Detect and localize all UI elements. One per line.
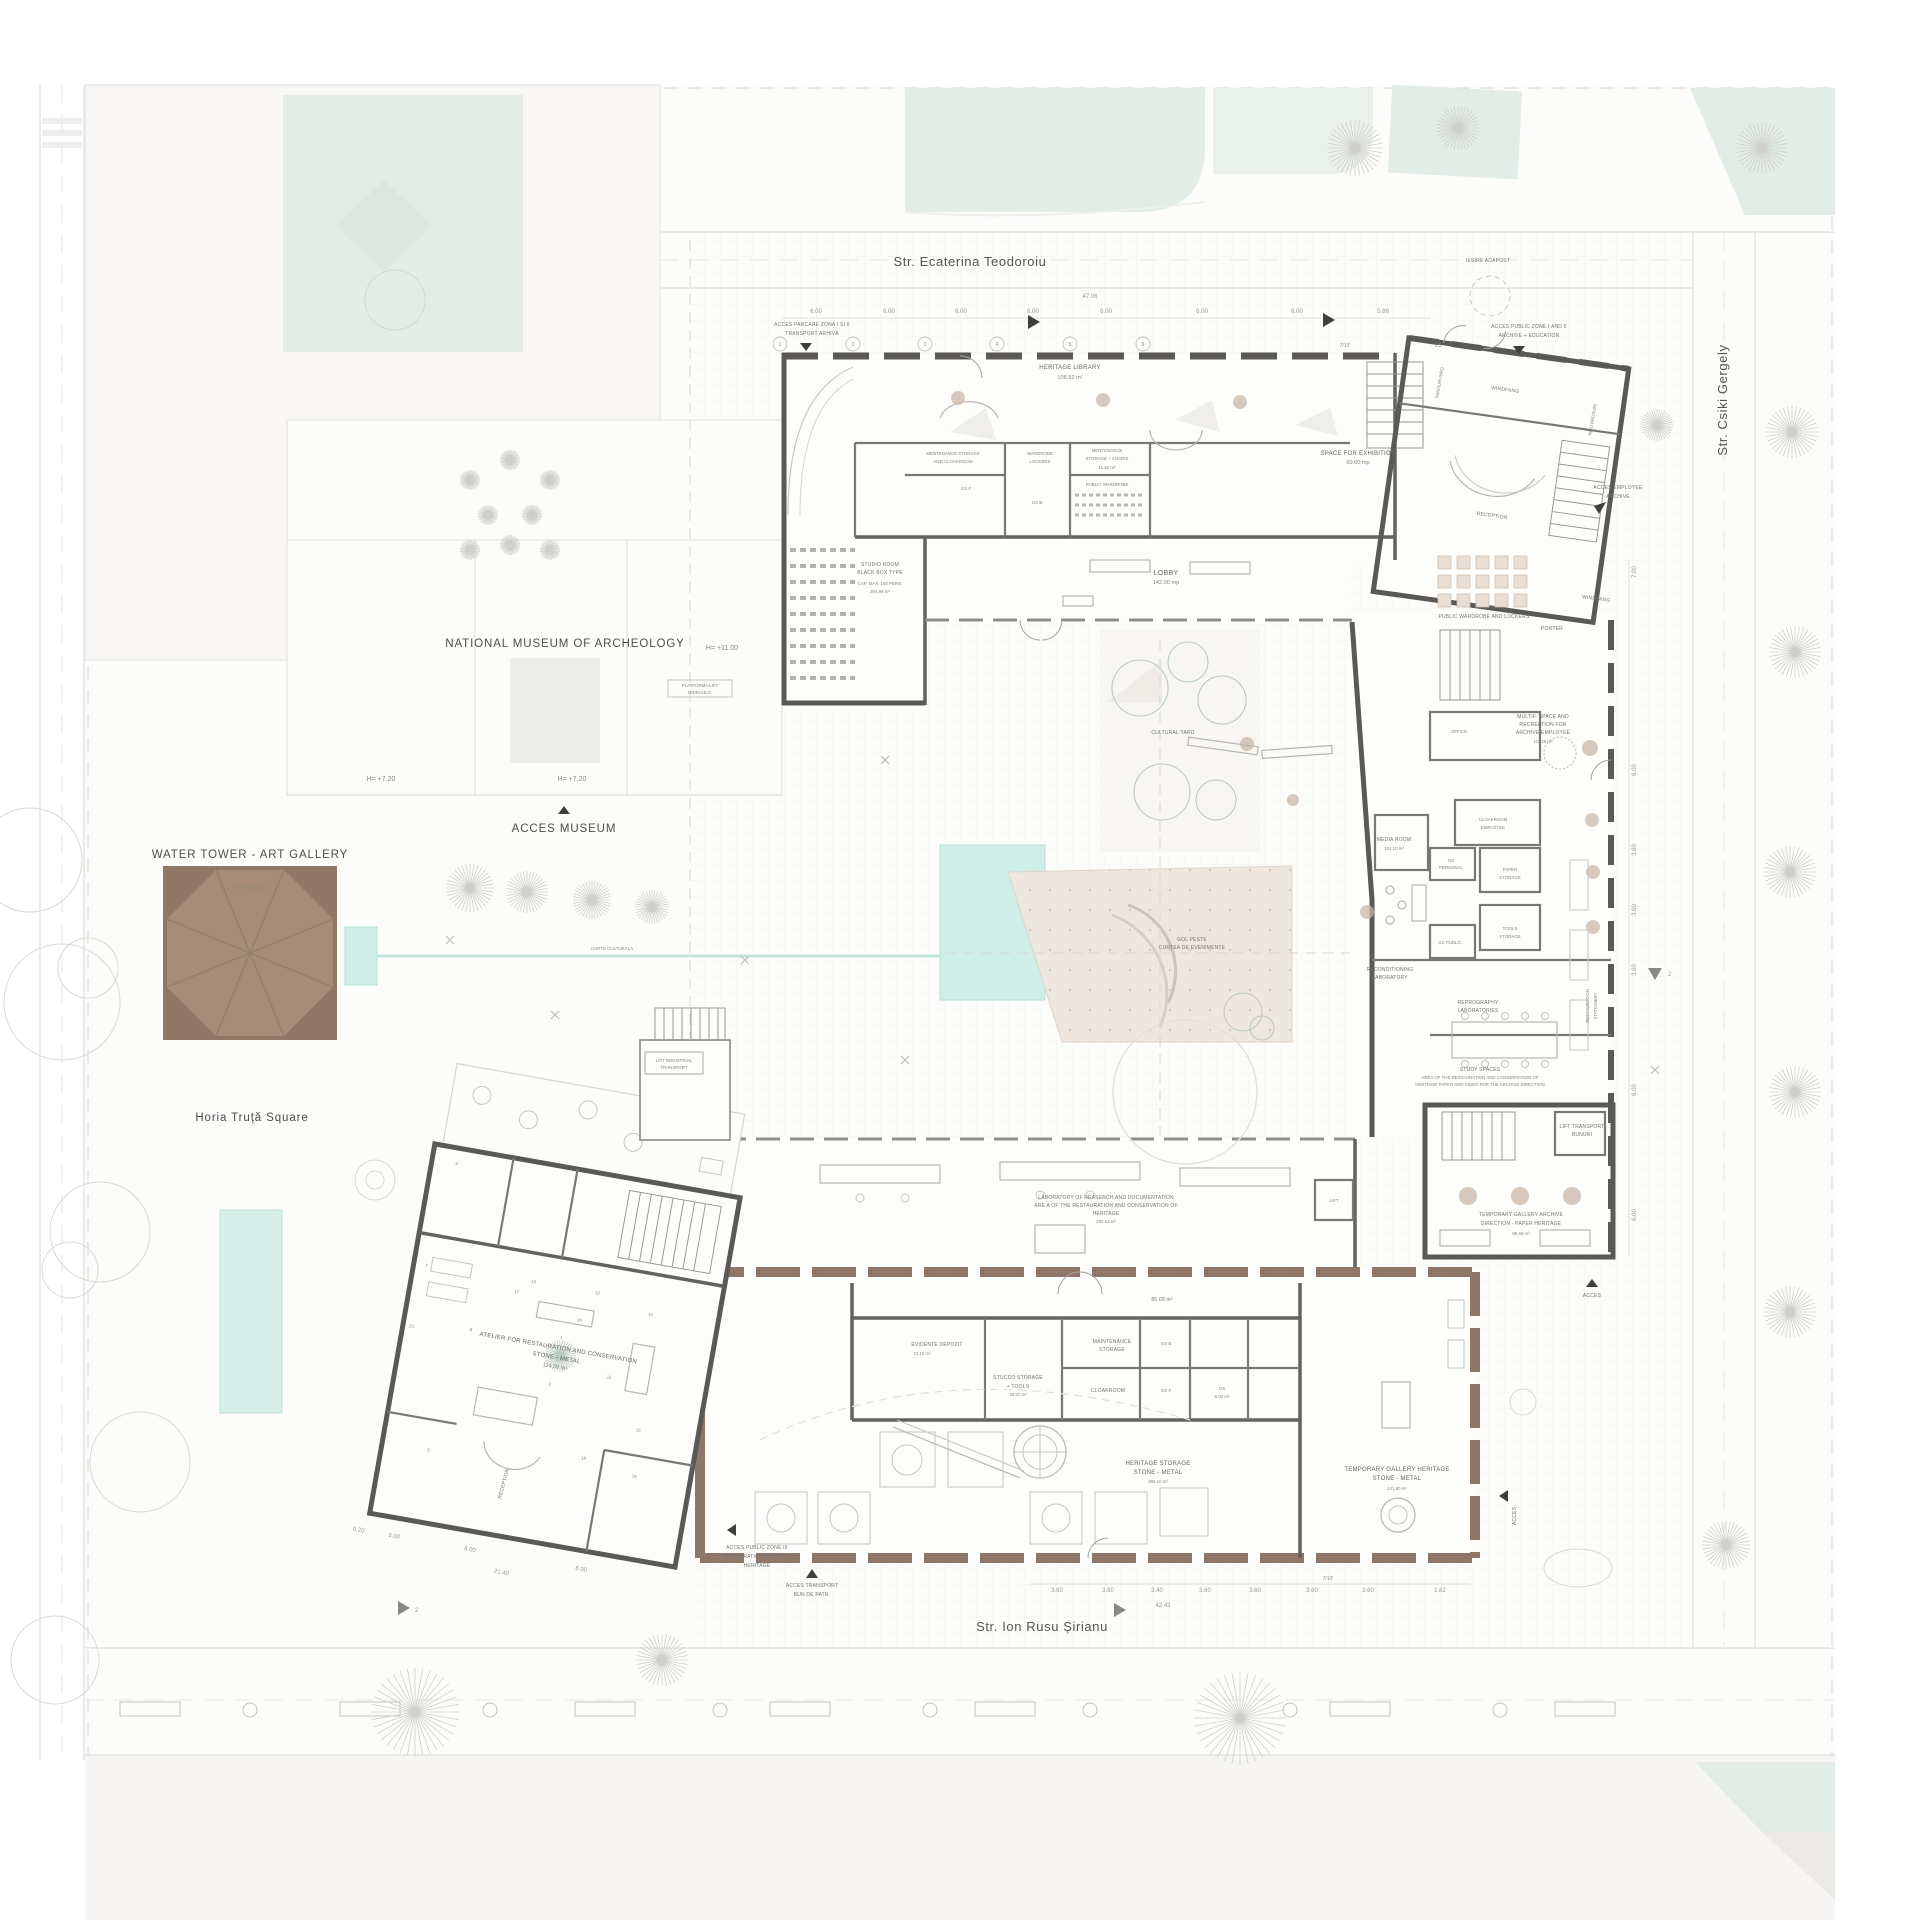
svg-text:6.00: 6.00 [1632, 1209, 1638, 1221]
svg-text:OFFICE: OFFICE [1451, 729, 1467, 734]
svg-text:6: 6 [1142, 342, 1145, 348]
room-label-studio: STUDIO ROOM [861, 562, 899, 568]
svg-text:STORAGE + CHAIRS: STORAGE + CHAIRS [1086, 456, 1129, 461]
svg-text:3.60: 3.60 [1306, 1588, 1318, 1594]
label-tower-height: H= +38.00 [234, 885, 267, 892]
svg-text:5.00 m²: 5.00 m² [1215, 1394, 1230, 1399]
svg-text:WARDROBE: WARDROBE [1027, 451, 1053, 456]
svg-text:72.10 m²: 72.10 m² [913, 1351, 931, 1356]
svg-text:6.00: 6.00 [1632, 1084, 1638, 1096]
svg-text:LIFT INDUSTRIAL: LIFT INDUSTRIAL [656, 1058, 693, 1063]
svg-text:1: 1 [779, 342, 782, 348]
svg-text:ACCES PUBLIC ZONE III: ACCES PUBLIC ZONE III [726, 1545, 788, 1551]
room-label-evidente: EVIDENTE DEPOZIT [911, 1342, 962, 1348]
svg-text:MAINTENANCE: MAINTENANCE [1093, 1339, 1132, 1345]
svg-text:PUBLIC WARDROBE AND LOCKERS: PUBLIC WARDROBE AND LOCKERS [1438, 614, 1530, 620]
svg-text:LIFT TRANSPORT: LIFT TRANSPORT [1559, 1124, 1604, 1130]
svg-text:6.00: 6.00 [810, 309, 822, 315]
svg-text:ACCES: ACCES [1583, 1293, 1602, 1299]
label-national-museum: NATIONAL MUSEUM OF ARCHEOLOGY [445, 638, 685, 650]
svg-text:292.14 m²: 292.14 m² [1096, 1219, 1116, 1224]
svg-text:STORAGE: STORAGE [1499, 875, 1520, 880]
svg-text:3.60: 3.60 [1632, 904, 1638, 916]
site-plan-drawing: 1 2 4 5 7 8 10 11 12 13 14 15 17 18 20 2… [0, 0, 1920, 1920]
svg-text:GS: GS [1219, 1386, 1225, 1391]
label-h1100: H= +11.00 [706, 645, 738, 652]
label-cultural-yard: CULTURAL YARD [1151, 730, 1194, 736]
svg-text:GS: GS [1448, 858, 1454, 863]
label-acces-museum: ACCES MUSEUM [512, 823, 617, 835]
room-label-lobby: LOBBY [1154, 570, 1179, 577]
svg-text:STATIONERY: STATIONERY [1593, 992, 1598, 1019]
svg-text:3.60: 3.60 [1632, 964, 1638, 976]
svg-text:LOCKERS: LOCKERS [1030, 459, 1051, 464]
svg-text:PORTER: PORTER [1541, 626, 1563, 632]
svg-text:ACCES TRANSPORT: ACCES TRANSPORT [786, 1583, 838, 1589]
svg-text:HERITAGE: HERITAGE [744, 1563, 771, 1569]
svg-text:4: 4 [996, 342, 999, 348]
svg-text:EMPLOYEE: EMPLOYEE [1481, 825, 1505, 830]
svg-text:3.40: 3.40 [1151, 1588, 1163, 1594]
room-label-heritage-library: HERITAGE LIBRARY [1039, 365, 1100, 371]
svg-text:3.60: 3.60 [1051, 1588, 1063, 1594]
svg-text:5: 5 [1069, 342, 1072, 348]
label-water-tower: WATER TOWER - ART GALLERY [152, 849, 349, 861]
svg-text:MENTENANCE STORAGE: MENTENANCE STORAGE [926, 451, 979, 456]
svg-text:141.80 m²: 141.80 m² [1387, 1486, 1407, 1491]
svg-text:7/10': 7/10' [1340, 343, 1351, 349]
svg-text:ACCES EMPLOYEE: ACCES EMPLOYEE [1594, 485, 1643, 491]
svg-text:HERITAGE PAPER AND VIDEO FOR T: HERITAGE PAPER AND VIDEO FOR THE ARCHIVE… [1415, 1082, 1544, 1087]
svg-text:RECREATION FOR: RECREATION FOR [1519, 722, 1566, 728]
svg-text:CURTEA DE EVENIMENTE: CURTEA DE EVENIMENTE [1159, 945, 1226, 951]
room-label-laboratory: LABORATORY OF REASERCH AND DOCUMENTATION [1038, 1195, 1174, 1201]
svg-text:MENTENANCE: MENTENANCE [1092, 448, 1123, 453]
svg-text:RESTAURATION/CONSERV.: RESTAURATION/CONSERV. [722, 1554, 792, 1560]
svg-text:6.00: 6.00 [1632, 764, 1638, 776]
svg-text:PAPER: PAPER [1503, 867, 1518, 872]
svg-text:LABORATORIES: LABORATORIES [1458, 1008, 1499, 1014]
lobby-garden [1100, 630, 1260, 852]
svg-text:BUN DE PATR.: BUN DE PATR. [794, 1592, 831, 1598]
pool-west [220, 1210, 282, 1413]
svg-text:108.92 m²: 108.92 m² [1057, 375, 1082, 381]
svg-text:TOOLS: TOOLS [1503, 926, 1518, 931]
svg-text:11.40 m²: 11.40 m² [1098, 465, 1116, 470]
svg-text:7/10': 7/10' [1323, 1576, 1334, 1582]
svg-text:STUDY SPACES: STUDY SPACES [1460, 1067, 1501, 1073]
svg-text:142.00 mp: 142.00 mp [1153, 580, 1179, 586]
svg-text:6.00: 6.00 [1196, 309, 1208, 315]
street-label-top: Str. Ecaterina Teodoroiu [894, 254, 1047, 269]
svg-text:+ TOOLS: + TOOLS [1007, 1384, 1030, 1390]
svg-text:AREA OF THE RESTAURATION AND C: AREA OF THE RESTAURATION AND CONSERVATIO… [1421, 1075, 1538, 1080]
svg-text:STUCCO STORAGE: STUCCO STORAGE [993, 1375, 1043, 1381]
svg-text:GS F: GS F [961, 486, 972, 491]
svg-text:CLOAKROOM: CLOAKROOM [1479, 817, 1508, 822]
label-horia-truta-square: Horia Truță Square [195, 1112, 308, 1124]
svg-text:3.60: 3.60 [1362, 1588, 1374, 1594]
svg-text:6.00: 6.00 [883, 309, 895, 315]
street-label-bottom: Str. Ion Rusu Șirianu [976, 1619, 1108, 1634]
room-label-exhibition: SPACE FOR EXHIBITION [1321, 451, 1396, 457]
water-tower [163, 866, 337, 1040]
label-curte-culturala: CURTE CULTURALA [591, 946, 633, 951]
site-plan-page: 1 2 4 5 7 8 10 11 12 13 14 15 17 18 20 2… [0, 0, 1920, 1920]
svg-text:3: 3 [924, 342, 927, 348]
svg-text:3.60: 3.60 [1102, 1588, 1114, 1594]
svg-text:ACCES PUBLIC ZONE I AND II: ACCES PUBLIC ZONE I AND II [1491, 324, 1567, 330]
svg-text:GS B: GS B [1032, 500, 1043, 505]
svg-text:STONE - METAL: STONE - METAL [1134, 1470, 1183, 1476]
svg-text:7.00: 7.00 [1632, 566, 1638, 578]
svg-text:42.43: 42.43 [1155, 1603, 1171, 1609]
svg-text:25.57 m²: 25.57 m² [1009, 1392, 1027, 1397]
room-label-temp-gallery: TEMPORARY GALLERY HERITAGE [1344, 1467, 1449, 1473]
svg-text:GS PUBLIC: GS PUBLIC [1438, 940, 1461, 945]
svg-text:86.09 m²: 86.09 m² [1151, 1297, 1172, 1303]
svg-text:101.10 m²: 101.10 m² [1384, 846, 1404, 851]
museum-court [510, 658, 600, 763]
svg-text:TRANSPORT: TRANSPORT [661, 1065, 688, 1070]
industrial-lift [640, 1040, 730, 1140]
svg-text:GOL PESTE: GOL PESTE [1177, 937, 1207, 943]
svg-text:3.60: 3.60 [1199, 1588, 1211, 1594]
svg-text:PERSONAL: PERSONAL [1439, 865, 1463, 870]
svg-text:3.60: 3.60 [1632, 844, 1638, 856]
svg-text:CLOAKROOM: CLOAKROOM [1091, 1388, 1125, 1394]
svg-text:BUNURI: BUNURI [1572, 1132, 1592, 1138]
svg-text:6.00: 6.00 [1291, 309, 1303, 315]
svg-text:ACCES PARCARE ZONA I SI II: ACCES PARCARE ZONA I SI II [774, 322, 850, 328]
svg-text:TRANSPORT ARHIVĂ: TRANSPORT ARHIVĂ [785, 330, 839, 337]
svg-text:296.10 m²: 296.10 m² [1148, 1479, 1168, 1484]
svg-text:6.00: 6.00 [955, 309, 967, 315]
svg-text:RECONDITIONING: RECONDITIONING [1367, 967, 1414, 973]
room-label-heritage-storage: HERITAGE STORAGE [1125, 1461, 1190, 1467]
svg-text:STONE - METAL: STONE - METAL [1373, 1476, 1422, 1482]
svg-text:6.00: 6.00 [1027, 309, 1039, 315]
svg-text:HIDRAULIC: HIDRAULIC [688, 690, 712, 695]
street-label-right: Str. Csiki Gergely [1715, 344, 1730, 455]
svg-text:1.3: 1.3 [1435, 343, 1442, 349]
room-label-multif: MULTIF. SPACE AND [1517, 714, 1569, 720]
svg-text:47.06: 47.06 [1082, 294, 1098, 300]
label-iesire-adapost: IESIRE ADAPOST [1466, 258, 1510, 264]
svg-text:AND CLOAKROOM: AND CLOAKROOM [933, 459, 972, 464]
svg-text:HERITAGE: HERITAGE [1093, 1211, 1120, 1217]
svg-text:BLACK BOX TYPE: BLACK BOX TYPE [857, 570, 903, 576]
svg-text:ARCHIVE + EDUCATION: ARCHIVE + EDUCATION [1499, 333, 1560, 339]
svg-text:111.29 m²: 111.29 m² [1533, 739, 1553, 744]
wardrobe-porter-band [1438, 556, 1527, 607]
room-label-media: MEDIA ROOM [1377, 837, 1412, 843]
label-platforma-lift: PLATFORMA LIFT [682, 683, 719, 688]
svg-text:ARCHIVE EMPLOYEE: ARCHIVE EMPLOYEE [1516, 730, 1571, 736]
svg-text:6.00: 6.00 [1100, 309, 1112, 315]
svg-text:66.40 m²: 66.40 m² [1512, 1231, 1530, 1236]
svg-text:STORAGE: STORAGE [1099, 1347, 1125, 1353]
label-h720b: H= +7.20 [558, 776, 587, 783]
svg-text:204.98 m²: 204.98 m² [870, 589, 890, 594]
svg-text:60.00 mp: 60.00 mp [1346, 460, 1369, 466]
road-left [40, 85, 84, 1760]
svg-text:GS B: GS B [1161, 1341, 1172, 1346]
svg-text:TEMPORARY GALLERY ARCHIVE: TEMPORARY GALLERY ARCHIVE [1479, 1212, 1564, 1218]
svg-text:ARCHIVE: ARCHIVE [1606, 494, 1630, 500]
svg-text:3.60: 3.60 [1249, 1588, 1261, 1594]
svg-text:1.82: 1.82 [1434, 1588, 1446, 1594]
svg-text:PUBLIC WARDROBE: PUBLIC WARDROBE [1086, 482, 1129, 487]
svg-text:RESTAURATION: RESTAURATION [1585, 989, 1590, 1023]
svg-text:LABORATORY: LABORATORY [1372, 975, 1408, 981]
svg-text:LIFT: LIFT [1329, 1198, 1338, 1203]
svg-text:5.86: 5.86 [1377, 309, 1389, 315]
svg-text:2: 2 [852, 342, 855, 348]
label-h720: H= +7.20 [367, 776, 396, 783]
svg-text:STORAGE: STORAGE [1499, 934, 1520, 939]
svg-text:CAP. MAX. 160 PERS.: CAP. MAX. 160 PERS. [858, 581, 903, 586]
svg-text:GS F: GS F [1161, 1388, 1172, 1393]
svg-text:REPROGRAPHY: REPROGRAPHY [1457, 1000, 1499, 1006]
svg-text:ACCES: ACCES [1512, 1506, 1518, 1525]
sidewalk-south [85, 1756, 1835, 1920]
svg-text:ARE A OF THE RESTAURATION AND: ARE A OF THE RESTAURATION AND CONSERVATI… [1034, 1203, 1177, 1209]
svg-text:DIRECTION - PAPER HERITAGE: DIRECTION - PAPER HERITAGE [1481, 1221, 1562, 1227]
